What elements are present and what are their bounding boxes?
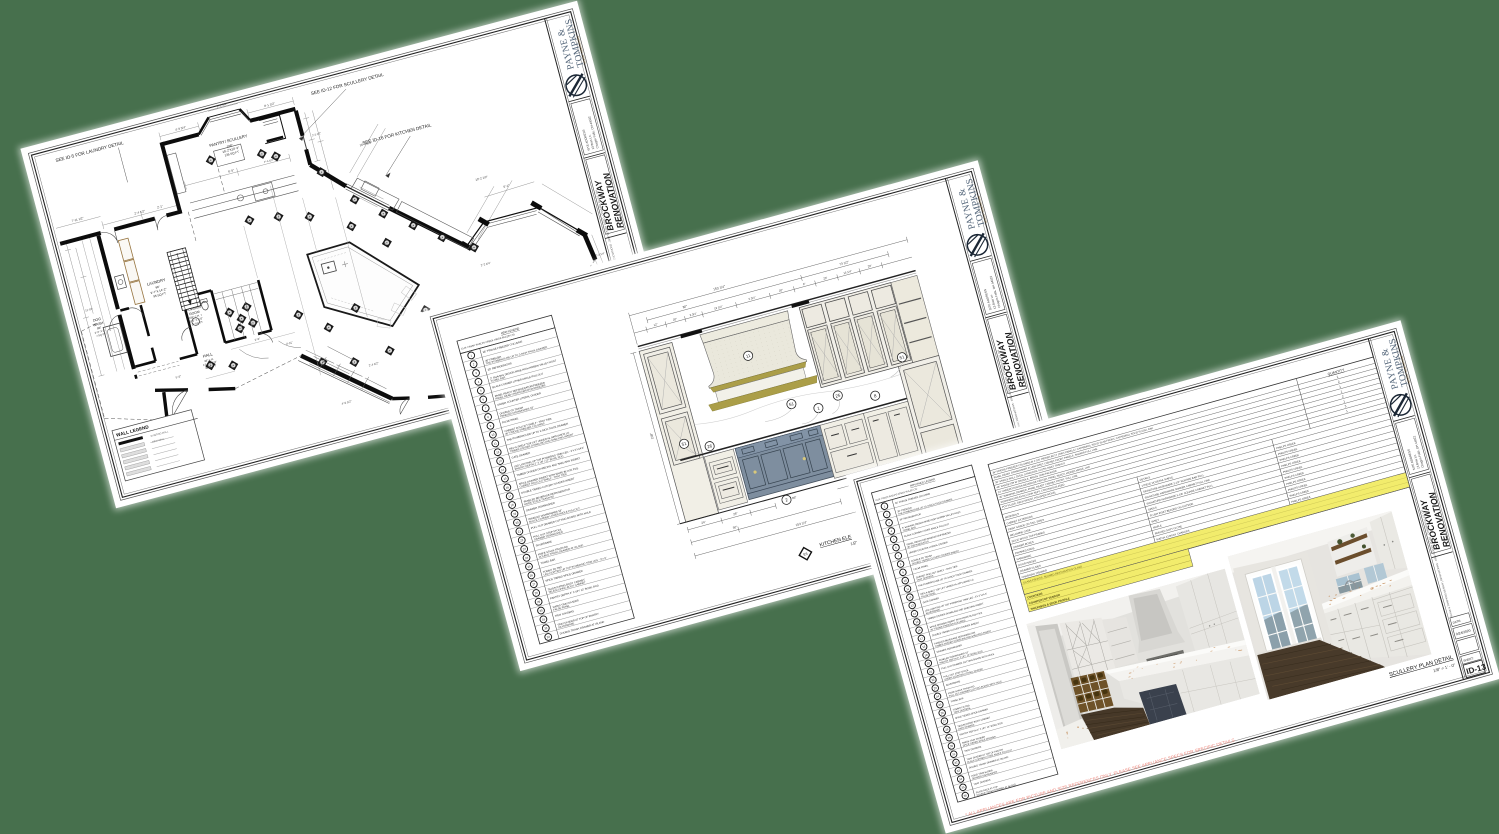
svg-text:80": 80": [682, 304, 688, 309]
svg-text:10'-2 1/2": 10'-2 1/2": [475, 175, 488, 182]
svg-text:2'-6": 2'-6": [254, 337, 260, 342]
svg-text:6'-1": 6'-1": [503, 183, 510, 188]
svg-text:28": 28": [733, 511, 738, 516]
svg-text:86": 86": [792, 495, 797, 500]
svg-text:1/2": 1/2": [850, 540, 859, 547]
svg-text:KITCHEN ELE: KITCHEN ELE: [819, 534, 853, 549]
svg-text:50": 50": [732, 525, 737, 530]
svg-text:8": 8": [802, 282, 806, 287]
svg-text:2'-4 1/2": 2'-4 1/2": [134, 209, 146, 216]
svg-text:19 1/2": 19 1/2": [714, 304, 724, 310]
svg-text:2'-3 1/4": 2'-3 1/4": [595, 251, 605, 257]
svg-text:20": 20": [779, 288, 784, 293]
svg-text:2'-2 1/4": 2'-2 1/4": [480, 261, 491, 267]
svg-text:4'-0 1/2": 4'-0 1/2": [341, 399, 352, 405]
svg-text:12": 12": [653, 322, 658, 327]
svg-text:4'-9 3/4": 4'-9 3/4": [175, 125, 187, 132]
svg-text:9'-1 1/2": 9'-1 1/2": [264, 101, 276, 108]
svg-text:2'-11": 2'-11": [286, 340, 294, 346]
svg-text:9/24/2020: 9/24/2020: [1455, 628, 1471, 636]
svg-text:153 1/4": 153 1/4": [795, 520, 807, 527]
svg-text:108": 108": [649, 432, 655, 439]
svg-text:20": 20": [823, 276, 828, 281]
svg-text:7'-11 1/2": 7'-11 1/2": [71, 216, 84, 223]
svg-text:5'-6": 5'-6": [175, 374, 181, 379]
svg-text:20": 20": [672, 317, 677, 322]
svg-text:24": 24": [701, 520, 706, 525]
svg-text:20": 20": [867, 264, 872, 269]
svg-text:11'-10": 11'-10": [85, 307, 94, 313]
svg-text:153 1/4": 153 1/4": [713, 284, 727, 291]
svg-text:13 1/4": 13 1/4": [843, 269, 853, 275]
svg-text:2'-4 1/2": 2'-4 1/2": [368, 361, 379, 367]
svg-text:SHEET:: SHEET:: [1463, 656, 1474, 663]
svg-text:DATE:: DATE:: [1452, 619, 1462, 625]
svg-text:2'-1": 2'-1": [157, 204, 164, 209]
svg-text:3'-5 1/2": 3'-5 1/2": [311, 131, 321, 137]
